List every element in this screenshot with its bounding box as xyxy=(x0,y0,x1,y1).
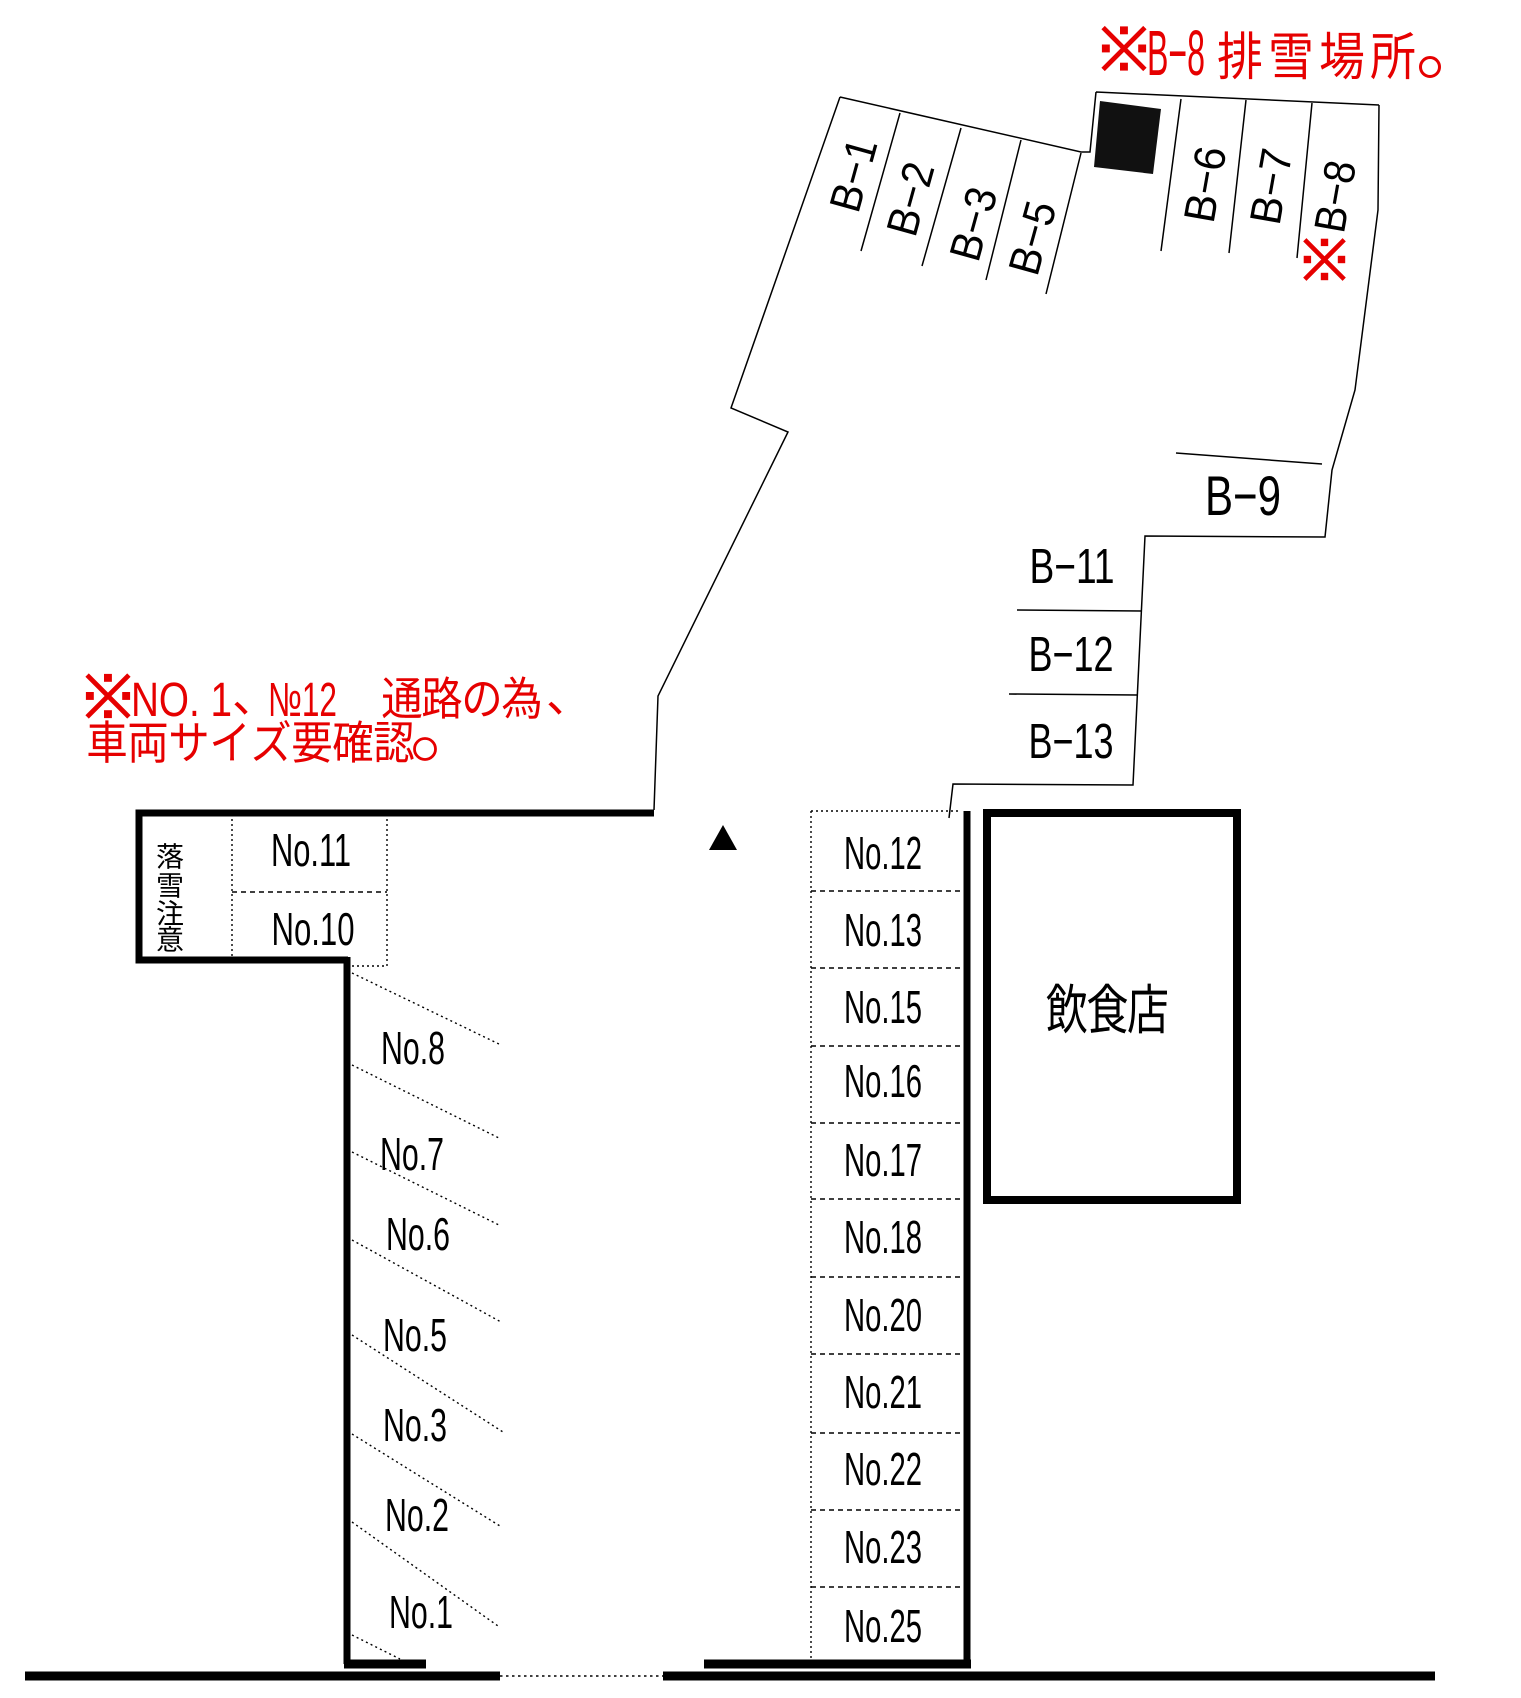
svg-text:No.7: No.7 xyxy=(380,1128,444,1180)
svg-text:No.23: No.23 xyxy=(844,1521,922,1573)
svg-text:No.15: No.15 xyxy=(844,981,922,1033)
svg-text:No.20: No.20 xyxy=(844,1289,922,1341)
svg-text:No.8: No.8 xyxy=(381,1022,445,1074)
svg-text:B−12: B−12 xyxy=(1029,628,1114,682)
svg-text:No.5: No.5 xyxy=(383,1309,447,1361)
svg-text:№12: №12 xyxy=(268,674,337,727)
svg-text:No.16: No.16 xyxy=(844,1055,922,1107)
svg-text:B−11: B−11 xyxy=(1030,540,1115,594)
svg-text:No.6: No.6 xyxy=(386,1208,450,1260)
svg-text:No.17: No.17 xyxy=(844,1134,922,1186)
svg-text:No.3: No.3 xyxy=(383,1399,447,1451)
svg-text:No.11: No.11 xyxy=(271,824,351,876)
svg-text:No.12: No.12 xyxy=(844,827,922,879)
svg-text:No.10: No.10 xyxy=(272,903,355,955)
svg-text:No.18: No.18 xyxy=(844,1211,922,1263)
svg-text:No.22: No.22 xyxy=(844,1443,922,1495)
svg-text:No.1: No.1 xyxy=(389,1586,453,1638)
svg-text:B−9: B−9 xyxy=(1205,464,1281,527)
svg-text:No.25: No.25 xyxy=(844,1600,922,1652)
svg-text:B−8: B−8 xyxy=(1147,17,1205,89)
svg-text:No.21: No.21 xyxy=(844,1366,922,1418)
svg-text:NO. 1: NO. 1 xyxy=(131,674,232,727)
svg-text:No.2: No.2 xyxy=(385,1489,449,1541)
svg-text:No.13: No.13 xyxy=(844,904,922,956)
svg-text:B−13: B−13 xyxy=(1029,715,1114,769)
